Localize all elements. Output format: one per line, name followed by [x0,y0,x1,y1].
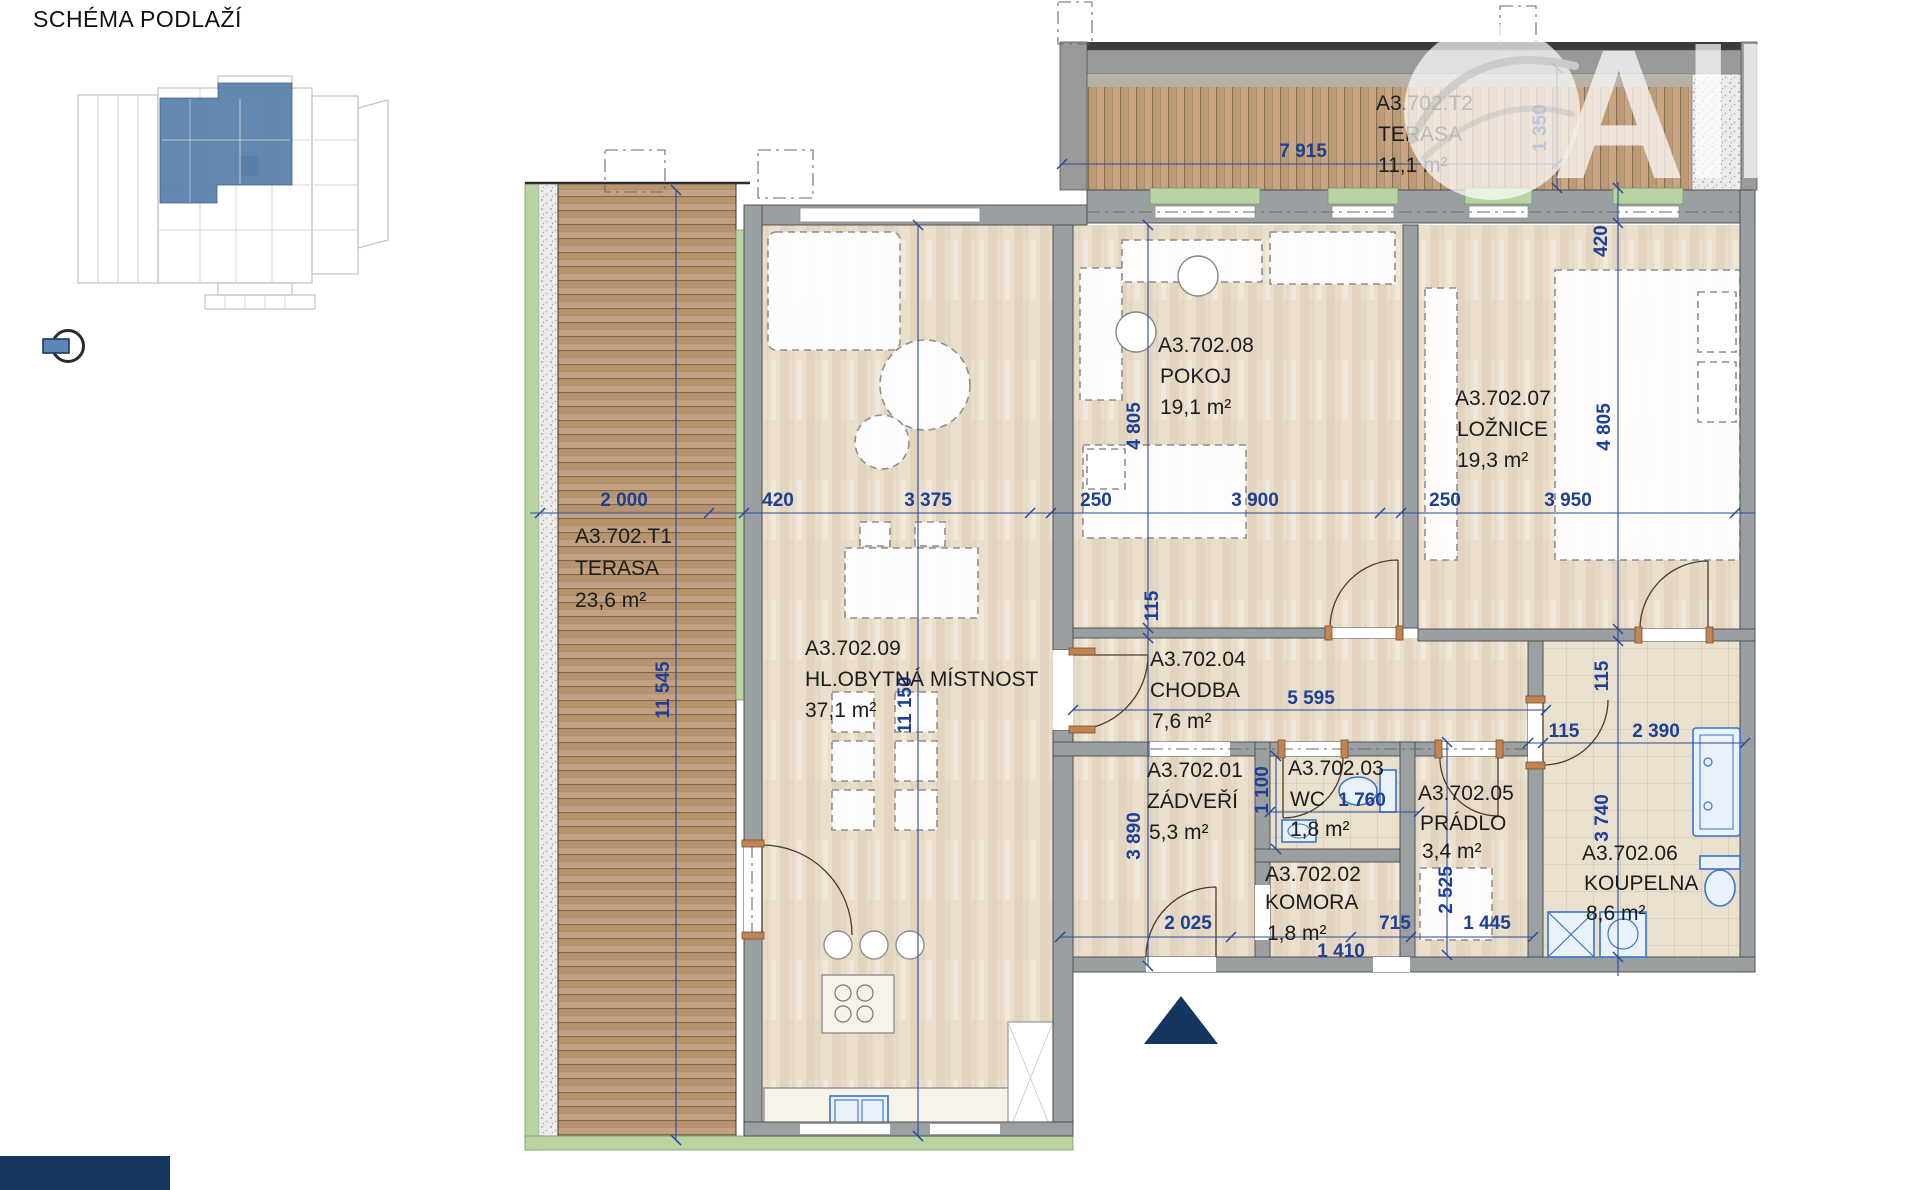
highlighted-unit-region [160,83,292,203]
dim-250a: 250 [1080,490,1112,511]
bathroom-toilet-bowl [1705,870,1735,906]
room-name: CHODBA [1150,679,1240,702]
dim-11545: 11 545 [653,661,674,718]
dim-420-top: 420 [1591,225,1612,257]
room-area: 1,8 m² [1290,818,1350,841]
room-area: 3,4 m² [1422,840,1482,863]
room-area: 8,6 m² [1586,902,1646,925]
room-name: HL.OBYTNÁ MÍSTNOST [805,668,1039,691]
dim-715: 715 [1379,913,1411,934]
orientation-compass-icon [43,331,84,362]
room-area: 37,1 m² [805,699,876,722]
dim-2390: 2 390 [1632,721,1680,742]
dim-250b: 250 [1429,490,1461,511]
dim-2000: 2 000 [600,490,648,511]
bathroom-toilet-tank [1700,856,1740,869]
room-code: A3.702.01 [1147,759,1243,782]
dim-420: 420 [762,490,794,511]
room-code: A3.702.04 [1150,648,1246,671]
grid-marker [758,150,813,198]
page-title: SCHÉMA PODLAŽÍ [33,6,242,32]
dim-7915: 7 915 [1279,141,1327,162]
room-area: 19,1 m² [1160,396,1231,419]
room-area: 5,3 m² [1149,821,1209,844]
dim-3740: 3 740 [1592,794,1613,842]
room-area: 19,3 m² [1457,449,1528,472]
room-name: LOŽNICE [1457,418,1548,441]
entrance-marker-icon [1144,996,1218,1044]
dim-3890: 3 890 [1124,812,1145,860]
room-code: A3.702.02 [1265,863,1361,886]
dim-1100: 1 100 [1252,766,1273,814]
dim-115-c: 115 [1549,721,1580,742]
watermark-text: Allri [1552,12,1897,218]
dim-4805-left: 4 805 [1124,402,1145,450]
room-code: A3.702.07 [1455,387,1551,410]
room-code: A3.702.05 [1418,782,1514,805]
room-name: KOMORA [1265,891,1358,914]
room-area: 23,6 m² [575,589,646,612]
room-name: WC [1290,788,1325,811]
room-name: PRÁDLO [1420,812,1506,835]
dim-3900: 3 900 [1231,490,1279,511]
room-name: POKOJ [1160,365,1231,388]
dim-3375: 3 375 [904,490,952,511]
room-area: 1,8 m² [1267,922,1327,945]
dim-1760: 1 760 [1338,790,1386,811]
room-name: TERASA [575,557,659,580]
room-code: A3.702.06 [1582,842,1678,865]
dim-115-a: 115 [1142,590,1163,621]
dim-1445: 1 445 [1463,913,1511,934]
dim-2525: 2 525 [1436,866,1457,914]
room-name: KOUPELNA [1584,872,1698,895]
dim-5595: 5 595 [1287,688,1335,709]
room-code: A3.702.09 [805,637,901,660]
dim-3950: 3 950 [1544,490,1592,511]
room-code: A3.702.08 [1158,334,1254,357]
brand-footer-bar [0,1156,170,1190]
floorplan-page: SCHÉMA PODLAŽÍ [0,0,1920,1190]
dim-2025: 2 025 [1164,913,1212,934]
room-name: ZÁDVEŘÍ [1147,790,1238,813]
dim-115-b: 115 [1592,660,1613,691]
room-code: A3.702.03 [1288,757,1384,780]
floorplan-drawing: SCHÉMA PODLAŽÍ [0,0,1920,1190]
watermark: Allri [1404,12,1897,218]
room-code: A3.702.T1 [575,525,672,548]
floor-schematic [78,76,388,309]
dim-4805-right: 4 805 [1594,403,1615,451]
room-area: 7,6 m² [1152,710,1212,733]
grid-marker [1058,2,1092,44]
